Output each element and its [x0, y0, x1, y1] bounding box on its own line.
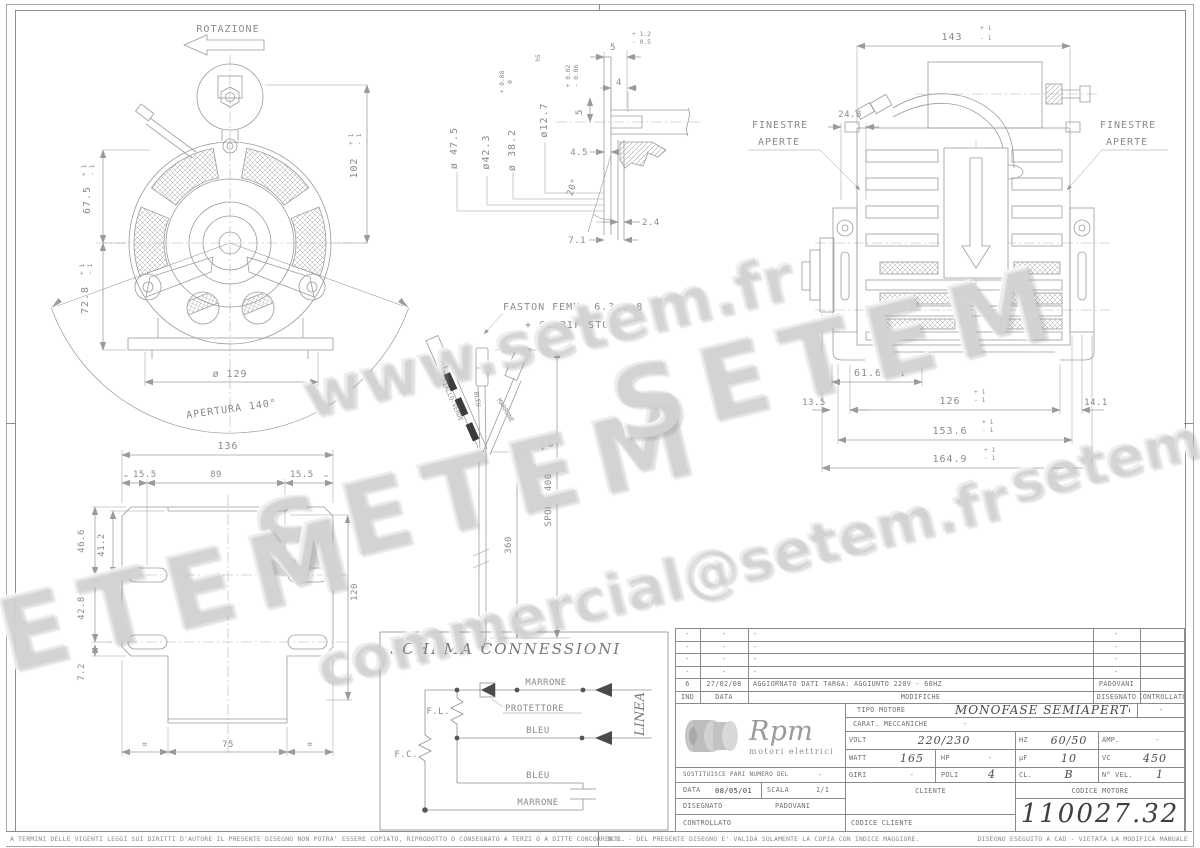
dim-text: 89: [210, 470, 222, 480]
watt-label: WATT: [849, 749, 889, 767]
rev-ind: 6: [675, 678, 700, 690]
tol-minus: - 1: [982, 427, 994, 434]
dim-126: 126 + 1 - 1: [850, 389, 1060, 410]
dia-callouts: ø 47.5 ø42.3 ø 38.2 + 0.08 0 ø12.7 h5: [449, 54, 604, 211]
dia-382-label: ø 38.2: [507, 129, 518, 171]
watt-value: 165: [889, 749, 935, 767]
schema-title: SCHEMA CONNESSIONI: [390, 640, 621, 658]
dim-153-6: 153.6 + 1 - 1: [838, 419, 1072, 440]
drawing-sheet: www.setem.fr SETEM SETEM commercial@sete…: [0, 0, 1200, 848]
rev-ind: -: [675, 653, 700, 665]
cl-value: B: [1043, 767, 1095, 782]
controllato-label: CONTROLLATO: [683, 814, 763, 831]
marrone-low-label: MARRONE: [517, 798, 558, 808]
dia-423-label: ø42.3: [481, 134, 492, 169]
fl-label: F.L.: [426, 707, 450, 717]
dim-7-1: 7.1: [568, 236, 638, 246]
rev-header-disegnato: DISEGNATO: [1093, 691, 1140, 703]
side-view: 143 + 1 - 1 24.8 FINESTRE APERTE FI: [748, 25, 1168, 472]
logo-name: Rpm: [749, 716, 834, 747]
data-label: DATA: [683, 782, 713, 798]
tol-minus: - 1: [980, 35, 992, 42]
dia-127-label: ø12.7: [539, 102, 550, 137]
dim-360: 360: [490, 452, 570, 638]
section-hatch: [620, 142, 666, 168]
tipo-motore-label: TIPO MOTORE: [857, 703, 967, 717]
dim-143: 143 + 1 - 1: [857, 25, 1070, 125]
dim-text: 61.6: [854, 368, 882, 379]
dim-text: 67.5: [82, 186, 93, 214]
dim-text: 5: [575, 109, 585, 115]
tol-plus: + 1: [81, 164, 88, 176]
sostituisce-value: -: [805, 767, 835, 782]
footer-nb: N.B. - DEL PRESENTE DISEGNO E' VALIDA SO…: [608, 835, 920, 843]
title-block: - - - - - - - - - - - - - - - - 6 27/02/…: [675, 628, 1185, 832]
dim-text: 24.8: [838, 110, 862, 120]
shaft-detail: 20° 5 + 1.2 - 0.5 4: [449, 31, 700, 246]
dim-text: 4.5: [570, 148, 588, 158]
amp-value: -: [1135, 731, 1180, 749]
tol-minus: 0: [548, 443, 555, 447]
fc-label: F.C.: [394, 750, 418, 760]
equal-mark: =: [324, 473, 328, 480]
rotation-arrow-icon: [184, 35, 264, 55]
sostituisce-label: SOSTITUISCE PARI NUMERO DEL: [683, 767, 803, 782]
dim-24-8: 24.8: [828, 110, 879, 200]
dim-text: 153.6: [932, 426, 967, 437]
equal-mark: =: [142, 740, 148, 750]
dim-dia-129: ø 129: [145, 352, 318, 386]
cliente-label: CLIENTE: [846, 784, 1015, 797]
codice-motore-value: 110027.32: [1016, 798, 1184, 830]
hp-label: HP: [941, 749, 967, 767]
dim-text: 13.5: [802, 398, 826, 408]
logo-cell: Rpm motori elettrici: [683, 708, 843, 764]
dim-5-shaft-end: 5 + 1.2 - 0.5: [590, 31, 651, 108]
codice-cliente-label: CODICE CLIENTE: [851, 814, 971, 831]
apertura-label: APERTURA 140°: [186, 398, 278, 422]
codice-motore-label: CODICE MOTORE: [1016, 784, 1184, 797]
dim-text: 164.9: [932, 454, 967, 465]
bleu-low-label: BLEU: [526, 771, 550, 781]
line-arrow-icon: [595, 731, 612, 745]
dim-46-6: 46.6: [77, 507, 95, 575]
logo-subtitle: motori elettrici: [749, 747, 834, 756]
vc-label: VC: [1102, 749, 1132, 767]
dim-42-8: 42.8: [77, 575, 95, 642]
amp-label: AMP.: [1102, 731, 1132, 749]
footer-cad: DISEGNO ESEGUITO A CAD - VIETATA LA MODI…: [978, 835, 1188, 843]
dim-text: 7.1: [568, 236, 586, 246]
faston-label-2: + COPRIFASTON: [525, 320, 616, 331]
rev-dis: PADOVANI: [1093, 678, 1140, 690]
finestre-right: FINESTRE APERTE: [1067, 120, 1168, 190]
rev-date: -: [700, 653, 748, 665]
rev-mod: AGGIORNATO DATI TARGA: AGGIUNTO 220V - 6…: [753, 678, 1088, 690]
dim-text: 46.6: [77, 529, 87, 553]
dim-text: 42.8: [77, 596, 87, 620]
footer-legal-right: N.B. - DEL PRESENTE DISEGNO E' VALIDA SO…: [608, 832, 1188, 846]
rev-ind: -: [675, 641, 700, 653]
hz-label: HZ: [1019, 731, 1044, 749]
plate-view: 136 = 15.5 89 15.5 =: [77, 441, 360, 756]
volt-value: 220/230: [889, 731, 999, 749]
marrone-top-label: MARRONE: [525, 678, 566, 688]
finestre-label: FINESTRE: [1100, 120, 1156, 131]
scala-value: 1/1: [805, 782, 840, 798]
rev-date: -: [700, 666, 748, 678]
hp-value: -: [967, 749, 1013, 767]
dim-41-2: 41.2: [97, 511, 113, 575]
vc-value: 450: [1130, 749, 1180, 767]
dim-75: = 75 =: [122, 660, 333, 756]
protettore-label: PROTETTORE: [505, 704, 564, 714]
giri-label: GIRI: [849, 767, 889, 782]
rev-header-controllato: CONTROLLATO: [1140, 691, 1185, 703]
line-arrow-icon: [595, 683, 612, 697]
rpm-logo-icon: [683, 714, 741, 758]
aperte-label: APERTE: [1106, 137, 1148, 148]
tol-minus: - 1: [974, 397, 986, 404]
nvel-value: 1: [1140, 767, 1180, 782]
data-value: 08/05/01: [715, 782, 760, 798]
faston-callout: FASTON FEMM. 6.3x0.8 + COPRIFASTON: [484, 302, 643, 334]
dim-13-5: 13.5: [802, 398, 868, 410]
protettore-icon: [481, 683, 495, 697]
plate-ext-lines: [92, 507, 164, 656]
fit-h5-label: h5: [535, 54, 542, 62]
cl-label: CL.: [1019, 767, 1044, 782]
dim-text: ø 129: [212, 369, 247, 380]
dim-sporg-400: SPORG.400 +50 0: [495, 350, 561, 638]
tipo-motore-extra: -: [1137, 703, 1185, 717]
rev-dis: -: [1093, 653, 1140, 665]
dim-text: 120: [350, 583, 360, 601]
side-ext-lines: [822, 314, 1092, 472]
tol-plus: + 1: [984, 447, 996, 454]
rev-dis: -: [1093, 628, 1140, 640]
rev-mod: -: [753, 653, 953, 665]
tol-minus: - 0.06: [573, 64, 580, 87]
dim-text: 15.5: [133, 470, 157, 480]
rev-date: -: [700, 641, 748, 653]
dim-72-8: 72.8 + 1 - 1: [79, 243, 126, 350]
dim-14-1: 14.1: [1082, 398, 1108, 410]
rev-header-modifiche: MODIFICHE: [748, 691, 1093, 703]
finestre-label: FINESTRE: [752, 120, 808, 131]
dim-155-89-155: = 15.5 89 15.5 =: [122, 470, 333, 565]
equal-mark: =: [307, 740, 313, 750]
rev-header-ind: IND: [675, 691, 700, 703]
dim-text: 102: [349, 157, 360, 178]
tol-minus: - 1: [893, 371, 905, 378]
rev-dis: -: [1093, 641, 1140, 653]
giri-value: -: [889, 767, 935, 782]
angle-20-label: 20°: [565, 177, 580, 197]
linea-label: LINEA: [633, 692, 648, 737]
dim-text: 7.2: [77, 663, 87, 681]
tol-plus: + 1.2: [632, 31, 651, 38]
tol-plus: + 1: [982, 419, 994, 426]
tol-plus: + 1: [893, 363, 905, 370]
rev-dis: -: [1093, 666, 1140, 678]
tol-minus: 0: [507, 80, 514, 84]
tol-minus: - 1: [984, 455, 996, 462]
schema-connessioni: SCHEMA CONNESSIONI P: [380, 632, 668, 830]
dim-text: 15.5: [290, 470, 314, 480]
uf-value: 10: [1043, 749, 1095, 767]
bleu-label: BLEU: [472, 391, 482, 407]
gv-stripes: [444, 372, 480, 441]
poli-label: POLI: [941, 767, 971, 782]
tol-plus: + 1: [348, 133, 355, 145]
dim-61-6: 61.6 + 1 - 1: [832, 363, 922, 382]
rev-ind: -: [675, 628, 700, 640]
rev-mod: -: [753, 628, 953, 640]
dim-keyway-4: 4: [600, 78, 637, 112]
dim-text: 14.1: [1084, 398, 1108, 408]
bleu-mid-label: BLEU: [526, 726, 550, 736]
tol-plus: + 1: [974, 389, 986, 396]
dim-7-2: 7.2: [77, 645, 95, 681]
volt-label: VOLT: [849, 731, 889, 749]
disegnato-label: DISEGNATO: [683, 798, 753, 813]
nvel-label: N° VEL.: [1102, 767, 1137, 782]
tol-minus: - 1: [89, 164, 96, 176]
dim-164-9: 164.9 + 1 - 1: [822, 447, 1092, 468]
rev-mod: -: [753, 641, 953, 653]
dim-text: 72.8: [80, 286, 91, 314]
dim-text: 136: [217, 441, 238, 452]
equal-mark: =: [124, 473, 128, 480]
dim-text: 360: [504, 536, 514, 554]
dim-text: 4: [616, 78, 622, 88]
uf-label: µF: [1019, 749, 1044, 767]
dim-text: 126: [939, 396, 960, 407]
rev-date: -: [700, 628, 748, 640]
dim-text: 143: [941, 32, 962, 43]
front-view: ROTAZIONE: [51, 24, 408, 433]
aperte-label: APERTE: [758, 137, 800, 148]
tol-minus: - 0.5: [632, 39, 651, 46]
footer-legal-left: A TERMINI DELLE VIGENTI LEGGI SUI DIRITT…: [10, 832, 595, 846]
carat-label: CARAT. MECCANICHE: [853, 717, 973, 731]
tol-minus: - 1: [87, 263, 94, 275]
rev-mod: -: [753, 666, 953, 678]
rev-header-data: DATA: [700, 691, 748, 703]
carat-value: -: [963, 717, 1003, 731]
hz-value: 60/50: [1043, 731, 1095, 749]
dim-text: 2.4: [642, 218, 660, 228]
faston-detail: GIALLO-VERDE BLEU MARRONE FASTON FEMM. 6…: [426, 302, 643, 650]
disegnato-value: PADOVANI: [775, 798, 840, 813]
faston-label-1: FASTON FEMM. 6.3x0.8: [503, 302, 643, 313]
rev-date: 27/02/08: [700, 678, 748, 690]
finestre-left: FINESTRE APERTE: [748, 120, 860, 190]
footer-strip: A TERMINI DELLE VIGENTI LEGGI SUI DIRITT…: [6, 831, 1192, 846]
rev-ind: -: [675, 666, 700, 678]
dim-text: SPORG.400: [544, 473, 554, 526]
dim-keyway-depth: 5 + 0.02 - 0.06: [565, 64, 590, 122]
tipo-motore-value: MONOFASE SEMIAPERTO: [955, 703, 1130, 717]
tol-plus: + 1: [79, 263, 86, 275]
dim-text: 41.2: [97, 533, 107, 557]
controllato-value: [775, 814, 840, 831]
scala-label: SCALA: [767, 782, 807, 798]
dim-120: 120: [290, 515, 360, 700]
dia-475-label: ø 47.5: [449, 127, 460, 169]
rotazione-label: ROTAZIONE: [196, 24, 259, 35]
tol-minus: - 1: [356, 133, 363, 145]
dim-text: 5: [610, 43, 616, 53]
tol-plus: +50: [540, 439, 547, 451]
dim-text: 75: [222, 740, 234, 750]
tol-plus: + 0.02: [565, 64, 572, 87]
poli-value: 4: [971, 767, 1013, 782]
tol-plus: + 1: [980, 25, 992, 32]
tol-plus: + 0.08: [499, 70, 506, 93]
